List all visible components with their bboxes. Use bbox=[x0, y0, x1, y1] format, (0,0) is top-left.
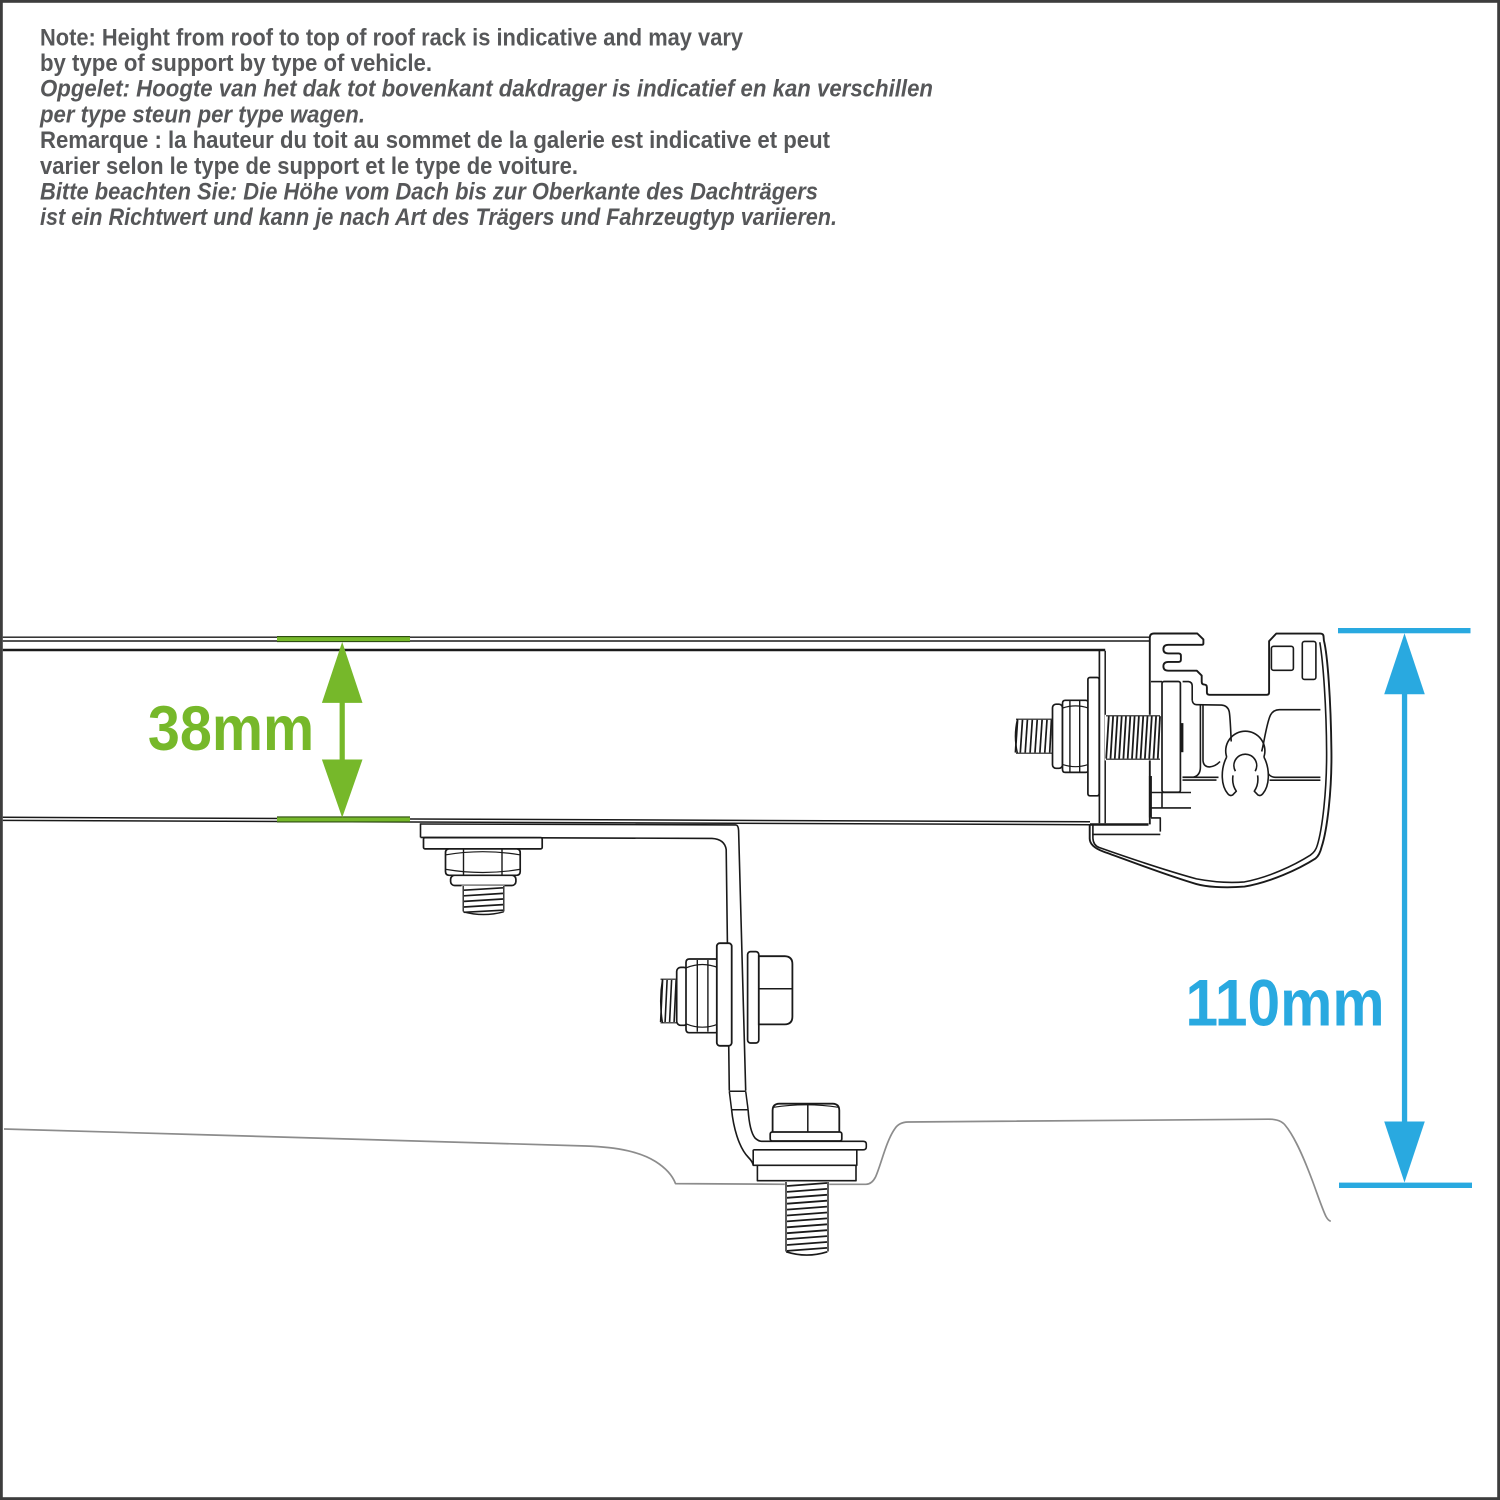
svg-text:Note: Height from roof to top: Note: Height from roof to top of roof ra… bbox=[40, 25, 743, 51]
svg-text:Remarque : la hauteur du toit: Remarque : la hauteur du toit au sommet … bbox=[40, 128, 830, 154]
svg-text:per type steun per type wagen.: per type steun per type wagen. bbox=[39, 102, 365, 128]
svg-text:38mm: 38mm bbox=[148, 694, 314, 764]
svg-text:Opgelet: Hoogte van het dak to: Opgelet: Hoogte van het dak tot bovenkan… bbox=[40, 77, 933, 103]
svg-text:by type of support by type of: by type of support by type of vehicle. bbox=[40, 51, 432, 77]
svg-text:varier selon le type de suppor: varier selon le type de support et le ty… bbox=[40, 154, 578, 180]
svg-text:110mm: 110mm bbox=[1186, 967, 1385, 1040]
svg-text:ist ein Richtwert und kann je: ist ein Richtwert und kann je nach Art d… bbox=[40, 205, 837, 231]
svg-text:Bitte beachten Sie: Die Höhe v: Bitte beachten Sie: Die Höhe vom Dach bi… bbox=[40, 180, 818, 206]
